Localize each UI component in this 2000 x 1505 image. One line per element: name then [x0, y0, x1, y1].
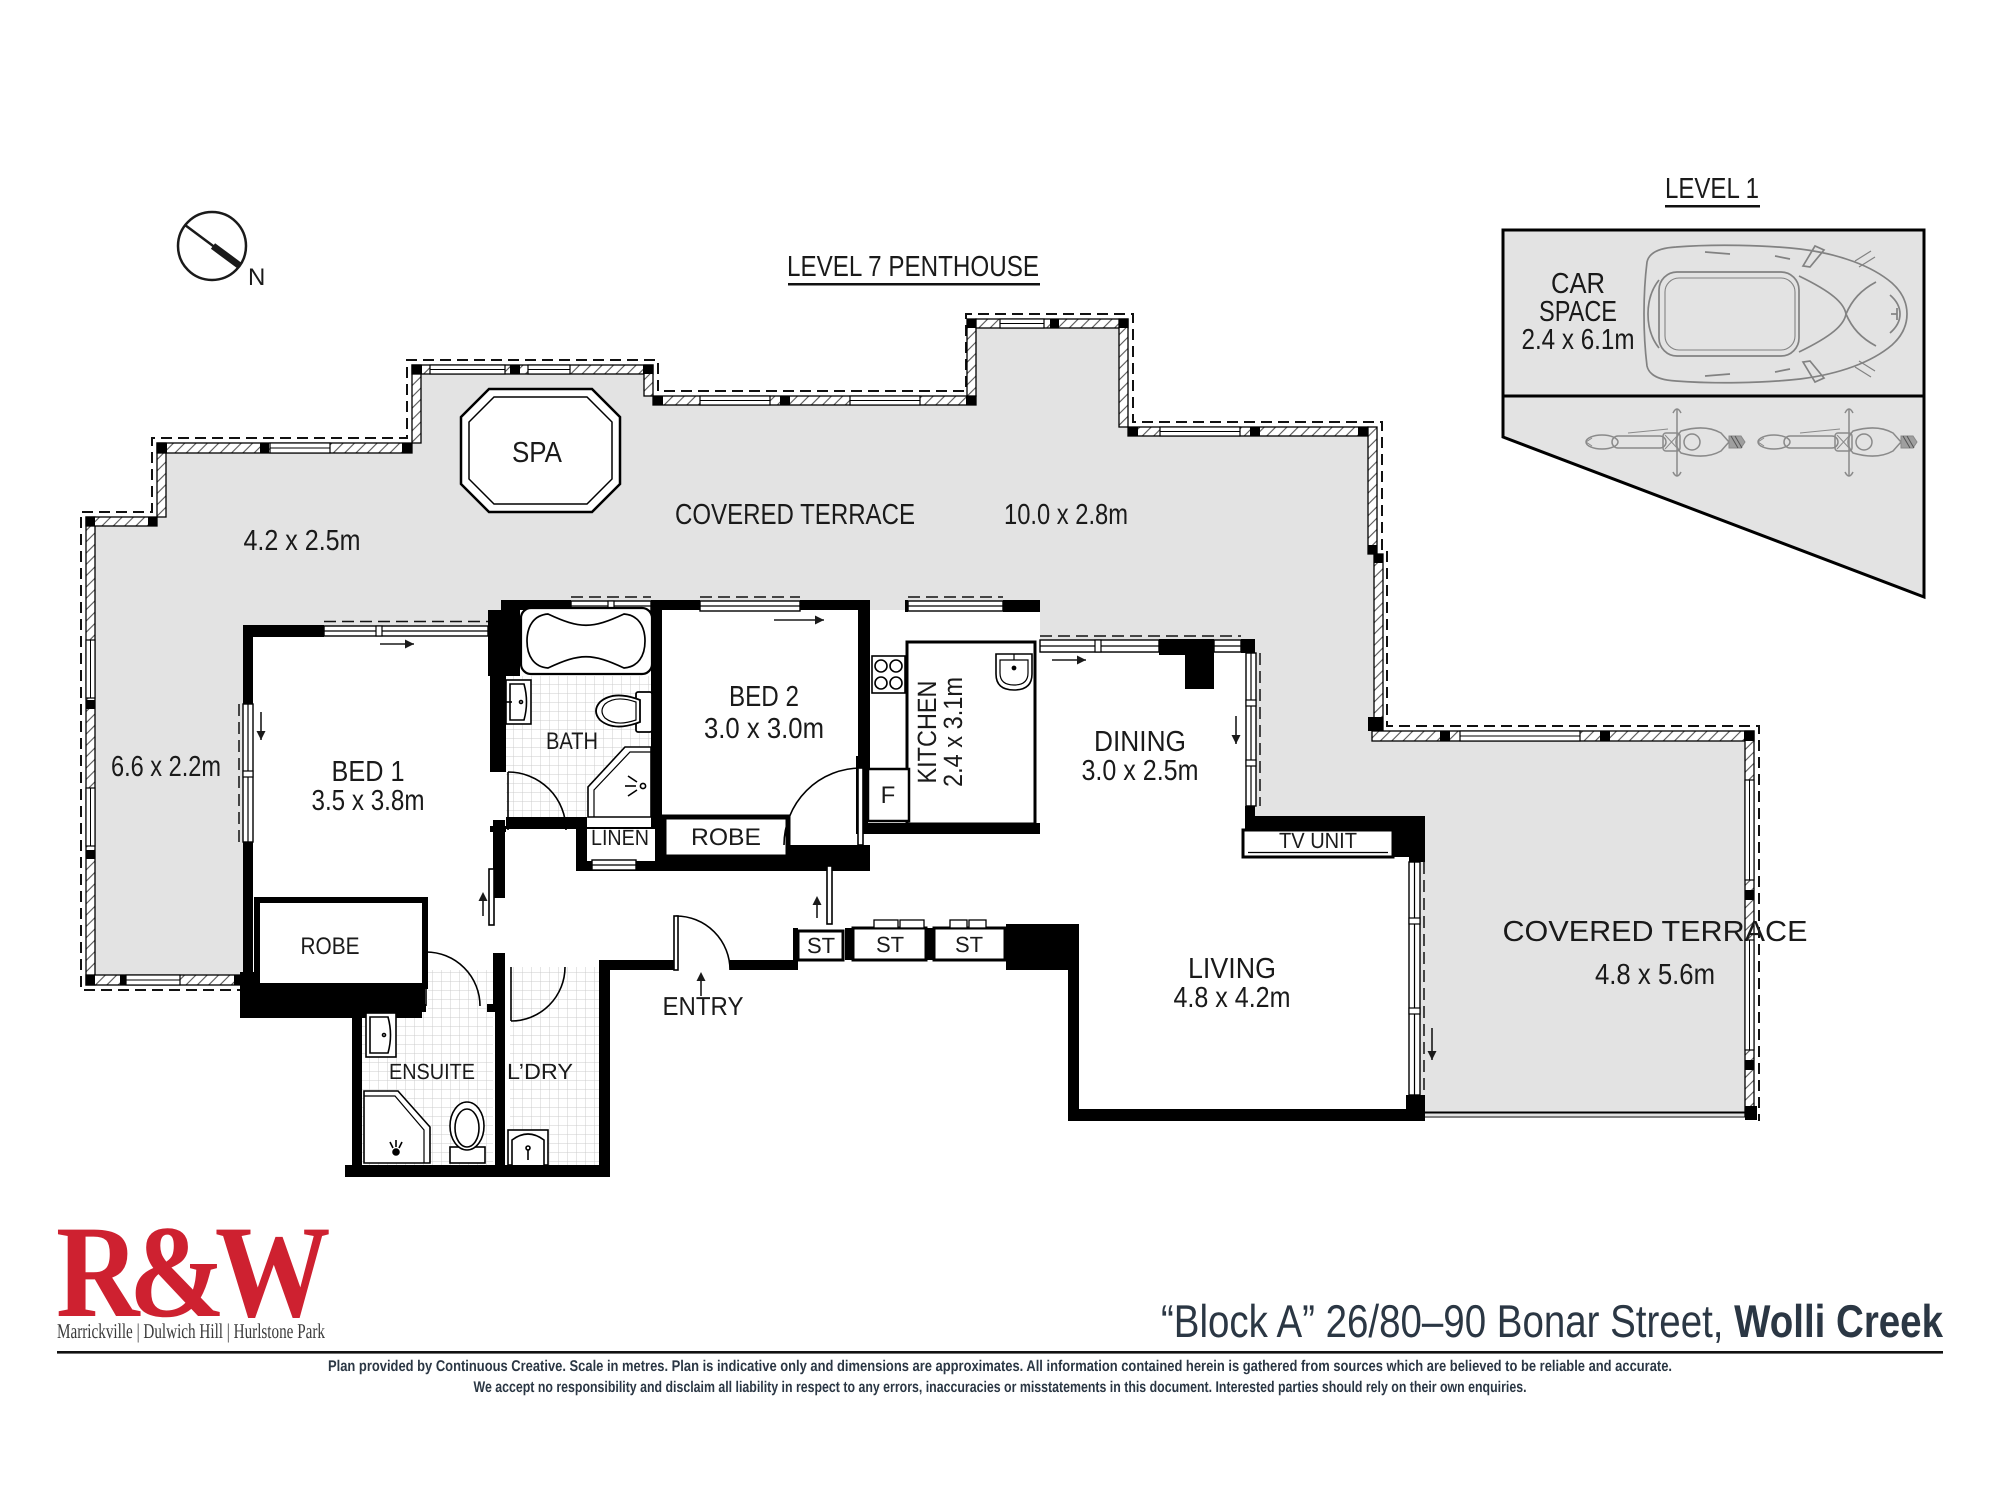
svg-text:2.4 x 3.1m: 2.4 x 3.1m [938, 677, 968, 787]
svg-text:COVERED TERRACE: COVERED TERRACE [675, 499, 915, 531]
svg-text:COVERED TERRACE: COVERED TERRACE [1503, 916, 1808, 948]
svg-text:ROBE: ROBE [301, 933, 360, 960]
svg-text:L’DRY: L’DRY [507, 1059, 573, 1084]
svg-text:ST: ST [955, 932, 983, 957]
svg-text:10.0 x 2.8m: 10.0 x 2.8m [1004, 499, 1128, 531]
svg-text:4.8 x 4.2m: 4.8 x 4.2m [1174, 982, 1291, 1014]
svg-text:BED 1: BED 1 [332, 756, 405, 788]
svg-text:ST: ST [876, 932, 904, 957]
svg-text:ENSUITE: ENSUITE [389, 1059, 475, 1084]
svg-text:4.2 x 2.5m: 4.2 x 2.5m [244, 525, 361, 557]
svg-text:N: N [248, 264, 265, 291]
svg-text:BATH: BATH [546, 728, 598, 755]
svg-text:“Block A” 26/80–90 Bonar Stree: “Block A” 26/80–90 Bonar Street, Wolli C… [1161, 1295, 1943, 1347]
svg-text:Marrickville | Dulwich Hill |: Marrickville | Dulwich Hill | Hurlstone … [57, 1319, 325, 1343]
svg-text:ROBE: ROBE [691, 824, 761, 851]
svg-text:SPA: SPA [512, 437, 563, 469]
svg-text:TV UNIT: TV UNIT [1279, 828, 1357, 853]
svg-text:BED 2: BED 2 [729, 681, 799, 713]
svg-text:LIVING: LIVING [1188, 953, 1276, 985]
svg-text:LEVEL 1: LEVEL 1 [1665, 173, 1759, 205]
svg-text:3.0 x 2.5m: 3.0 x 2.5m [1082, 755, 1199, 787]
svg-text:Plan provided by Continuous Cr: Plan provided by Continuous Creative. Sc… [328, 1358, 1672, 1375]
svg-text:3.0 x 3.0m: 3.0 x 3.0m [704, 713, 824, 745]
svg-text:4.8 x 5.6m: 4.8 x 5.6m [1595, 959, 1715, 991]
svg-text:LINEN: LINEN [591, 825, 649, 850]
svg-text:6.6 x 2.2m: 6.6 x 2.2m [111, 751, 221, 783]
svg-text:3.5 x 3.8m: 3.5 x 3.8m [312, 785, 425, 817]
svg-text:F: F [881, 782, 896, 809]
svg-text:ST: ST [807, 933, 835, 958]
svg-text:DINING: DINING [1094, 726, 1186, 758]
svg-text:We accept no responsibility an: We accept no responsibility and disclaim… [474, 1379, 1527, 1396]
svg-text:ENTRY: ENTRY [663, 991, 744, 1021]
svg-text:2.4 x 6.1m: 2.4 x 6.1m [1522, 324, 1635, 356]
svg-text:LEVEL 7 PENTHOUSE: LEVEL 7 PENTHOUSE [787, 251, 1039, 283]
